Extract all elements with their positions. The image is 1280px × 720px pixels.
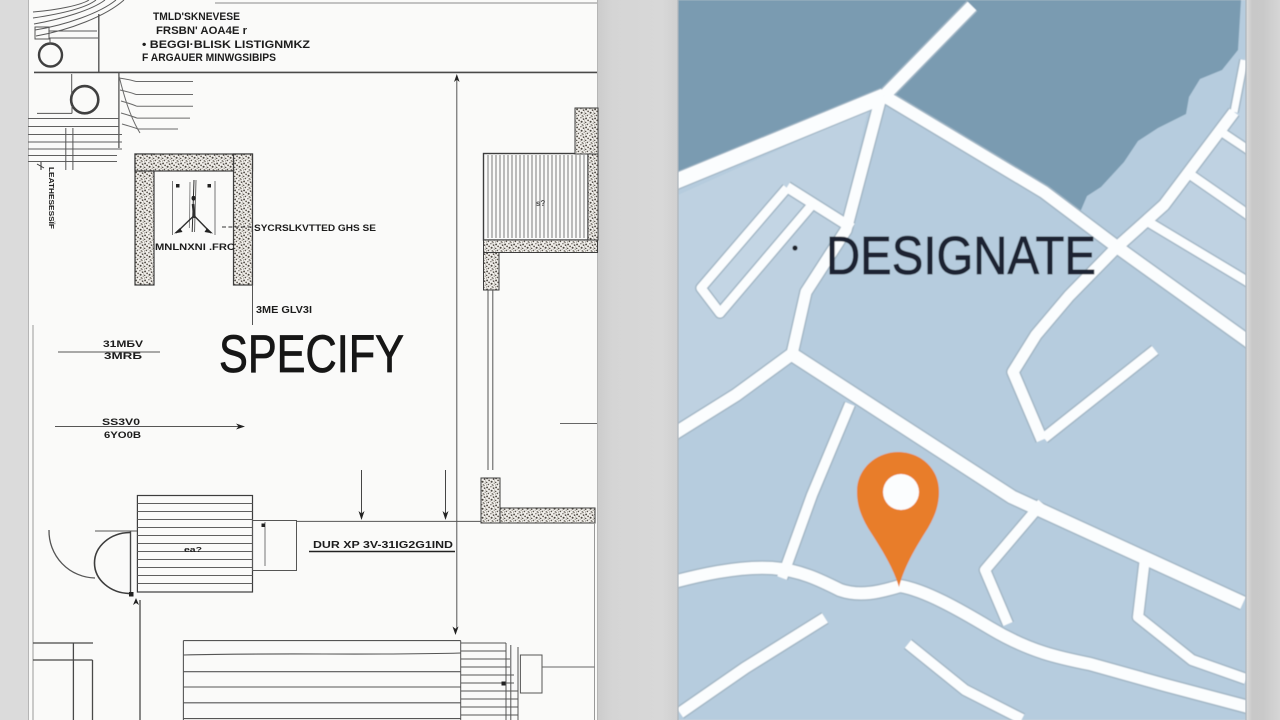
svg-text:31MБV: 31MБV: [103, 339, 143, 349]
svg-text:F ARGAUER MINWGSIBIPS: F ARGAUER MINWGSIBIPS: [142, 52, 276, 64]
svg-text:LEATHESESSЇF: LEATHESESSЇF: [47, 167, 56, 229]
svg-text:3ME GLV3І: 3ME GLV3І: [256, 305, 312, 316]
svg-text:еа?: еа?: [184, 547, 202, 554]
svg-text:6YO0B: 6YO0B: [104, 430, 142, 440]
svg-text:SYCRSLKVTTED GHS SE: SYCRSLKVTTED GHS SE: [254, 223, 376, 234]
svg-text:FRSBN' AOA4E r: FRSBN' AOA4E r: [156, 25, 248, 37]
svg-text:DESIGNATE: DESIGNATE: [826, 226, 1096, 286]
svg-text:SS3V0: SS3V0: [102, 417, 140, 427]
svg-text:ѕ?: ѕ?: [536, 199, 545, 208]
svg-text:TMLD'SKNEVESE: TMLD'SKNEVESE: [153, 11, 240, 23]
svg-text:• BEGGІ·BLISK LISTIGNMKZ: • BEGGІ·BLISK LISTIGNMKZ: [142, 39, 310, 51]
svg-text:SPECIFY: SPECIFY: [219, 325, 404, 384]
svg-text:MNLNXNІ .FRC: MNLNXNІ .FRC: [155, 242, 236, 252]
svg-text:3MRБ: 3MRБ: [104, 351, 143, 361]
svg-text:DUR XP 3V-31IG2G1IND: DUR XP 3V-31IG2G1IND: [313, 539, 453, 551]
